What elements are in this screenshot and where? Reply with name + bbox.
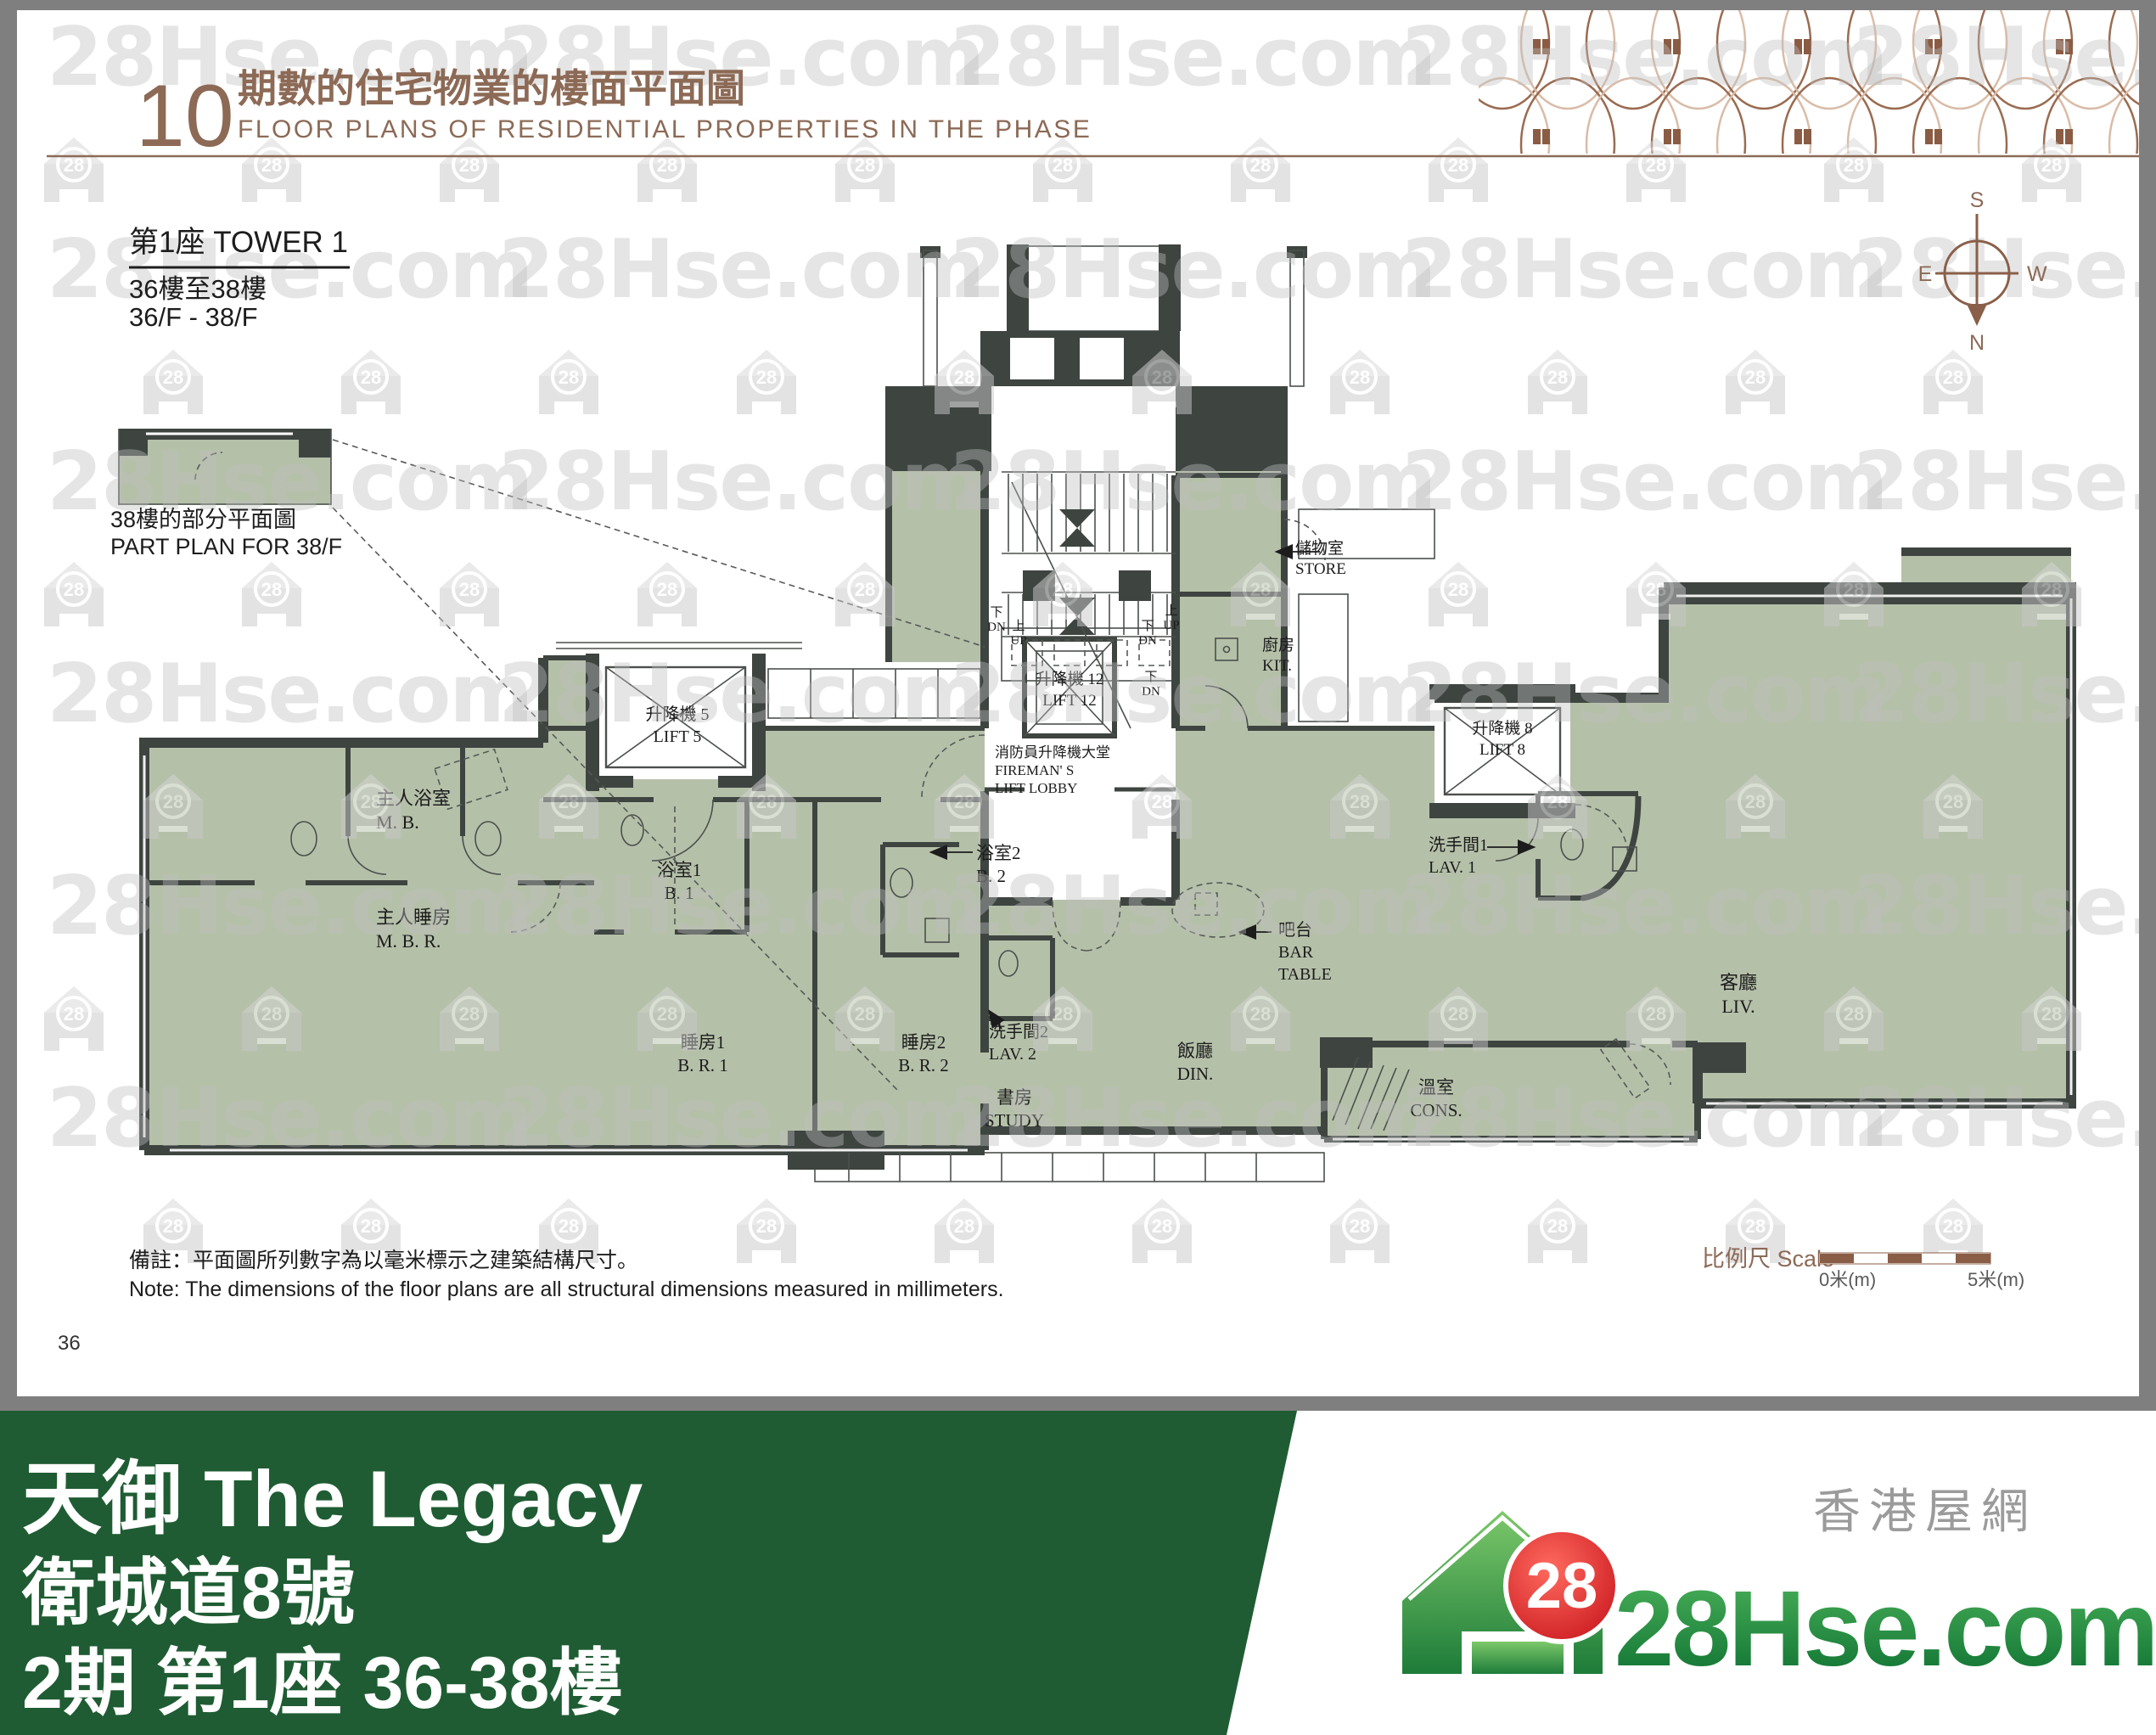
watermark-text: 28Hse.com [950,11,1435,104]
label-fireman-lobby: 消防員升降機大堂 [995,744,1110,761]
compass-w: W [2027,262,2047,286]
watermark-text: 28Hse.com [950,648,1435,741]
watermark-text: 28Hse.com [1853,860,2156,953]
watermark-text: 28Hse.com [498,223,983,317]
note-zh: 備註：平面圖所列數字為以毫米標示之建築結構尺寸。 [129,1249,638,1272]
compass-n: N [1969,331,1985,355]
label-dn-right: 下 [1141,620,1154,633]
label-lav2: LAV. 2 [989,1045,1036,1064]
header-title-zh: 期數的住宅物業的樓面平面圖 [238,67,745,110]
watermark-text: 28Hse.com [498,860,983,953]
banner-line3: 2期 第1座 36-38樓 [22,1642,622,1724]
compass-s: S [1970,188,1985,212]
label-dn-right: DN [1138,634,1157,648]
tower-title: 第1座 TOWER 1 [129,226,348,259]
watermark-text: 28Hse.com [1401,648,1886,741]
watermark-text: 28Hse.com [1401,1072,1886,1165]
label-up-right: UP [1163,619,1179,632]
watermark-text: 28Hse.com [47,1072,531,1165]
label-up-right: 上 [1165,604,1177,618]
watermark-text: 28Hse.com [1853,223,2156,317]
section-number: 10 [136,67,234,166]
label-bar-table: TABLE [1278,965,1332,984]
label-living: LIV. [1721,996,1755,1017]
label-lav1: 洗手間1 [1429,835,1488,855]
watermark-text: 28Hse.com [47,648,531,741]
label-dn-left: 下 [990,606,1002,620]
scale-end: 5米(m) [1968,1269,2024,1290]
watermark-text: 28Hse.com [498,1072,983,1165]
banner-line1: 天御 The Legacy [22,1454,643,1543]
page-number: 36 [58,1332,81,1355]
watermark-text: 28Hse.com [1853,648,2156,741]
label-fireman-lobby: LIFT LOBBY [995,780,1077,796]
logo-badge: 28 [1526,1550,1598,1622]
page-canvas: 28 [0,0,2156,1735]
watermark-text: 28Hse.com [950,1072,1435,1165]
watermark-text: 28Hse.com [950,860,1435,953]
banner-line2: 衛城道8號 [21,1553,355,1634]
compass-e: E [1918,262,1933,286]
watermark-text: 28Hse.com [498,648,983,741]
label-living: 客廳 [1720,972,1757,993]
tower-floors-zh: 36樓至38樓 [129,274,267,304]
watermark-text: 28Hse.com [1401,11,1886,104]
watermark-text: 28Hse.com [498,435,983,529]
note-en: Note: The dimensions of the floor plans … [129,1277,1004,1301]
watermark-text: 28Hse.com [1401,435,1886,529]
tower-floors-en: 36/F - 38/F [129,302,258,332]
watermark-text: 28Hse.com [950,435,1435,529]
label-dining: 飯廳 [1177,1041,1213,1061]
watermark-text: 28Hse.com [1853,1072,2156,1165]
label-lift8: LIFT 8 [1479,741,1525,759]
watermark-text: 28Hse.com [1853,435,2156,529]
label-bedroom2: 睡房2 [901,1032,946,1053]
label-dn-left: DN [987,620,1006,634]
header-title-en: FLOOR PLANS OF RESIDENTIAL PROPERTIES IN… [238,115,1092,143]
label-fireman-lobby: FIREMAN' S [995,762,1074,778]
watermark-text: 28Hse.com [950,223,1435,317]
label-store: STORE [1295,560,1346,578]
watermark-text: 28Hse.com [47,860,531,953]
watermark-text: 28Hse.com [1401,223,1886,317]
logo-tagline: 香港屋網 [1813,1485,2037,1538]
watermark-text: 28Hse.com [1401,860,1886,953]
scale-start: 0米(m) [1819,1269,1876,1290]
watermark-text: 28Hse.com [1853,11,2156,104]
label-up-left: 上 [1012,619,1025,633]
part-plan-zh: 38樓的部分平面圖 [110,507,296,532]
label-up-left: UP [1010,634,1026,648]
part-plan-en: PART PLAN FOR 38/F [110,534,342,559]
label-store: 儲物室 [1295,539,1344,558]
logo-brand: 28Hse.com [1614,1569,2156,1688]
scale-label: 比例尺 Scale [1702,1246,1834,1272]
bottom-banner: 天御 The Legacy 衛城道8號 2期 第1座 36-38樓 28 28H… [0,1396,2156,1735]
